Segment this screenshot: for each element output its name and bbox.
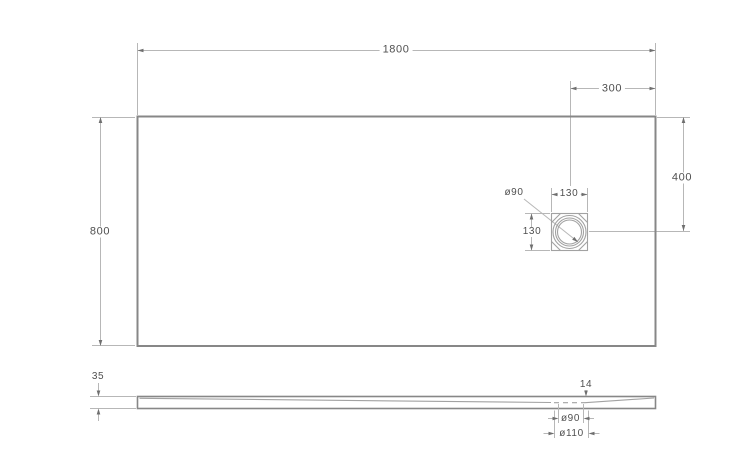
dim-label-width: 1800 — [380, 44, 413, 55]
drain-flange-chamfers — [552, 214, 588, 251]
arrowhead — [650, 87, 656, 91]
arrowhead — [97, 391, 101, 397]
arrowhead — [582, 193, 588, 197]
arrowhead — [138, 49, 144, 53]
arrowhead — [552, 193, 558, 197]
arrowhead — [571, 87, 577, 91]
drain-middle-circle — [556, 218, 584, 246]
dim-label-drain-diameter: ø90 — [502, 188, 525, 198]
dim-label-drain-offset-v: 400 — [669, 173, 695, 184]
arrowhead — [530, 245, 534, 251]
arrowhead — [682, 225, 686, 231]
technical-drawing-canvas: 1800 800 300 400 130 130 ø90 35 14 ø90 ø… — [0, 0, 750, 461]
dim-label-drain-drop: 14 — [578, 380, 594, 390]
dim-label-thickness: 35 — [90, 372, 106, 382]
arrowhead — [97, 409, 101, 415]
arrowhead — [589, 432, 595, 436]
arrowhead — [584, 391, 588, 397]
dim-label-drain-recess-diameter: ø110 — [557, 429, 585, 439]
drain-flange-square — [552, 214, 588, 251]
arrowhead — [530, 214, 534, 220]
dim-label-depth: 800 — [87, 227, 113, 238]
tray-outline-top-view — [138, 117, 656, 347]
dim-label-drain-hole-diameter: ø90 — [559, 414, 582, 424]
arrowhead — [650, 49, 656, 53]
drain-inner-circle — [558, 220, 582, 244]
arrowhead — [553, 417, 559, 421]
dim-label-drain-offset-h: 300 — [599, 83, 625, 94]
arrowhead — [549, 432, 555, 436]
surface-slope-left — [140, 398, 552, 402]
surface-slope-right — [585, 398, 654, 403]
dim-label-flange-height: 130 — [521, 227, 544, 237]
arrowhead — [584, 417, 590, 421]
tray-outline-side-view — [138, 397, 656, 409]
dim-label-flange-width: 130 — [558, 189, 581, 199]
extension-lines-thickness — [90, 397, 136, 409]
